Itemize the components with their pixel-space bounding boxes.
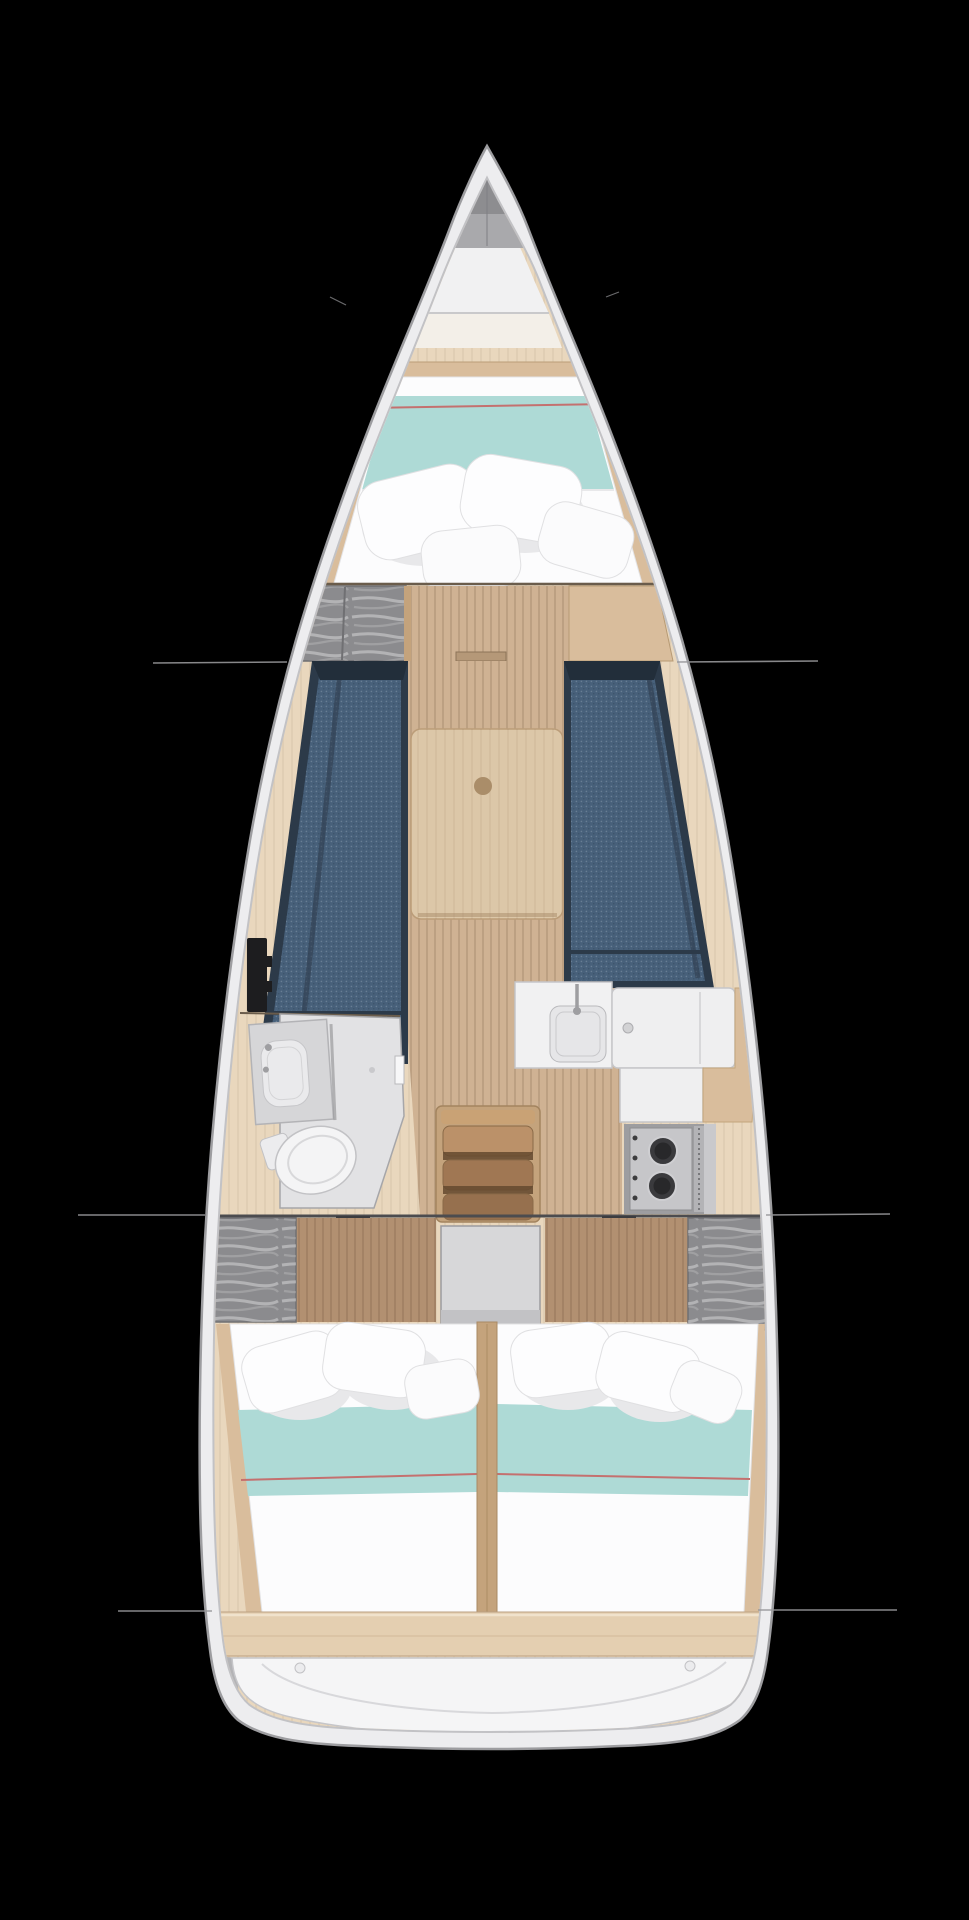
stove-knob — [633, 1176, 638, 1181]
stove-knob — [633, 1136, 638, 1141]
companionway — [436, 1106, 540, 1330]
panel-black — [247, 938, 267, 1012]
aft-floor-starboard-grain — [545, 1218, 688, 1322]
step-2 — [443, 1160, 533, 1190]
wardrobe-aft-port-texture — [212, 1218, 296, 1322]
wardrobe-frame — [404, 586, 411, 661]
stove-knob — [633, 1196, 638, 1201]
galley-counter-lower — [620, 1068, 703, 1122]
settee-starboard-headrest — [564, 661, 660, 680]
settee-port-headrest — [312, 661, 408, 680]
step-shadow — [443, 1152, 533, 1160]
forepeak-floor — [415, 314, 562, 348]
stern — [214, 1612, 774, 1737]
step-1 — [443, 1126, 533, 1156]
table-grain — [411, 729, 563, 919]
aft-floor-port-grain — [296, 1218, 436, 1322]
cabinet-starboard — [569, 586, 673, 661]
head-sink-counter — [249, 1019, 334, 1124]
leader-line — [153, 662, 287, 663]
shower-drain-icon — [369, 1067, 375, 1073]
burner-center — [655, 1143, 672, 1160]
blanket-port — [238, 1404, 477, 1496]
aft-cabins — [216, 1319, 772, 1614]
vberth-headboard — [396, 362, 580, 377]
counter-knob — [623, 1023, 633, 1033]
step-shadow — [443, 1186, 533, 1194]
passage-floor-grain — [411, 586, 569, 661]
door-recess — [456, 652, 506, 661]
stove-knob — [633, 1156, 638, 1161]
stove-side-trim — [704, 1124, 716, 1214]
stove — [624, 1124, 716, 1214]
burner-center — [654, 1178, 671, 1195]
saloon-table — [411, 729, 563, 919]
stern-hinge-port — [295, 1663, 305, 1673]
floorplan-canvas — [0, 0, 969, 1920]
panel-tab — [265, 956, 272, 967]
leader-line — [766, 1214, 890, 1215]
panel-tab — [265, 981, 272, 992]
table-post-dot — [474, 777, 492, 795]
stern-hinge-starboard — [685, 1661, 695, 1671]
head-door-hinge — [395, 1056, 404, 1084]
yacht-layout-svg — [0, 0, 969, 1920]
galley-faucet-head — [573, 1007, 581, 1015]
steps-top-landing — [441, 1110, 535, 1124]
transom-beam — [214, 1612, 774, 1656]
wardrobe-aft-starboard-texture — [688, 1218, 770, 1330]
forward-bulkhead-lockers — [292, 584, 674, 661]
leader-line — [677, 661, 818, 662]
